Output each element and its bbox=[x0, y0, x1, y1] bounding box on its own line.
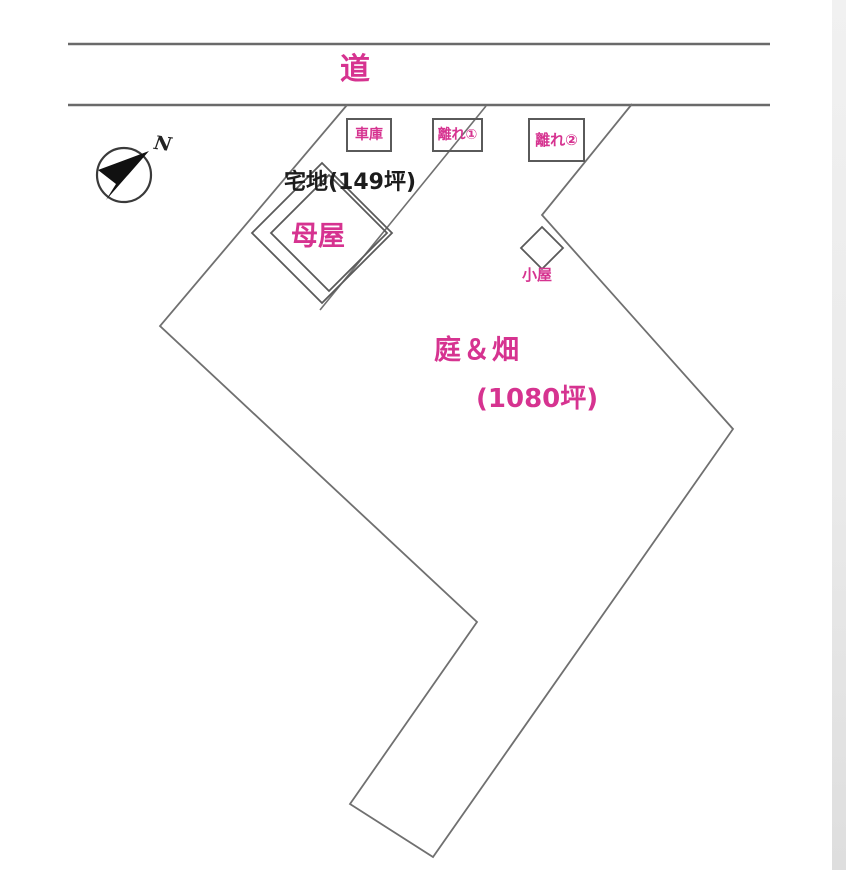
garden-size-label: (1080坪) bbox=[476, 386, 598, 412]
annex2-box: 離れ② bbox=[528, 118, 585, 162]
right-edge-band bbox=[832, 0, 846, 870]
compass-north-arrow-icon bbox=[98, 151, 149, 200]
shed-label: 小屋 bbox=[522, 268, 552, 283]
shed-outline bbox=[521, 227, 563, 269]
garden-field-label: 庭＆畑 bbox=[434, 337, 521, 364]
annex2-label: 離れ② bbox=[535, 133, 578, 148]
diagram-linework bbox=[0, 0, 846, 870]
land-plot-diagram: 車庫 離れ① 離れ② 道 N 宅地(149坪) 母屋 小屋 庭＆畑 (1080坪… bbox=[0, 0, 846, 870]
garage-box: 車庫 bbox=[346, 118, 392, 152]
annex1-box: 離れ① bbox=[432, 118, 483, 152]
residential-area-label: 宅地(149坪) bbox=[284, 172, 416, 194]
property-boundary bbox=[160, 104, 733, 857]
main-house-label: 母屋 bbox=[291, 223, 345, 250]
annex1-label: 離れ① bbox=[438, 128, 478, 142]
road-label: 道 bbox=[340, 55, 371, 85]
garage-label: 車庫 bbox=[355, 128, 383, 142]
compass-north-label: N bbox=[153, 134, 173, 155]
